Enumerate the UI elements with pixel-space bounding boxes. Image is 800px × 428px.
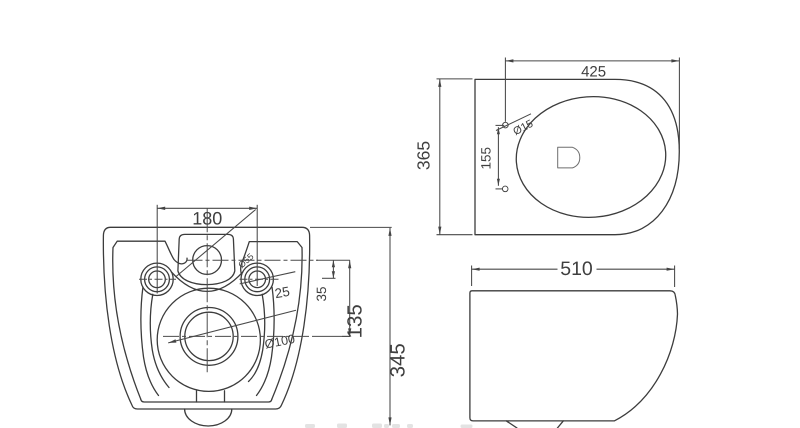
svg-text:35: 35 <box>314 286 329 301</box>
svg-text:365: 365 <box>414 141 434 170</box>
svg-text:345: 345 <box>386 343 409 377</box>
svg-text:425: 425 <box>581 63 606 80</box>
svg-text:135: 135 <box>344 304 367 338</box>
svg-text:25: 25 <box>274 284 291 301</box>
svg-text:Ø100: Ø100 <box>263 332 296 352</box>
svg-text:155: 155 <box>479 147 494 170</box>
svg-text:510: 510 <box>560 258 593 280</box>
svg-text:180: 180 <box>192 209 222 229</box>
